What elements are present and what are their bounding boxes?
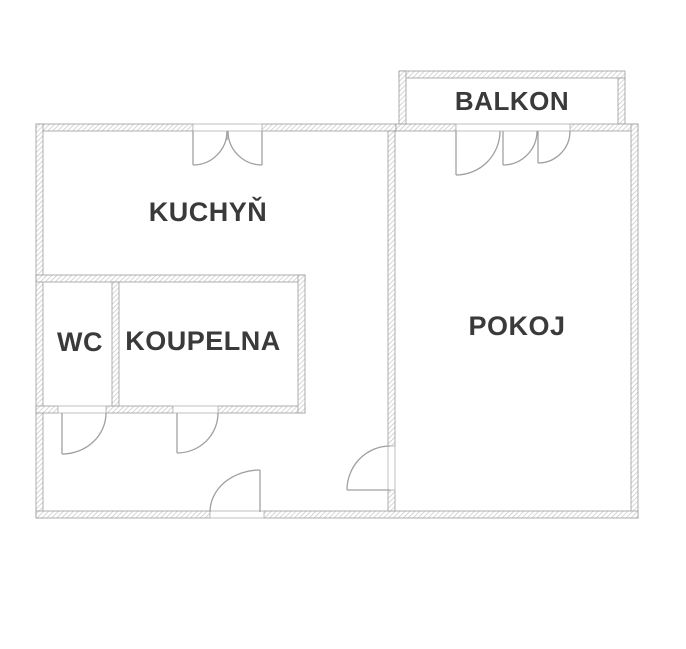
room-label-pokoj: POKOJ <box>468 311 565 341</box>
room-label-kuchyn: KUCHYŇ <box>149 196 268 227</box>
wall-koupelna-right <box>298 275 305 413</box>
opening-pokoj-door <box>388 446 395 490</box>
wall-wcblock-bottom-b <box>106 406 173 413</box>
wall-wc-divider <box>112 282 119 406</box>
room-label-koupelna: KOUPELNA <box>125 326 281 356</box>
opening-kitchen-door <box>193 124 262 131</box>
wall-top-b <box>262 124 396 131</box>
wall-balcony-right <box>618 78 625 124</box>
koupelna-door-arc <box>177 413 218 453</box>
wall-pokoj-left-upper <box>388 131 395 446</box>
floor-plan-drawing: BALKON KUCHYŇ POKOJ WC KOUPELNA <box>0 0 686 649</box>
pokoj-door-arc <box>347 446 390 490</box>
opening-wc-door <box>58 406 106 413</box>
kitchen-door-left-arc <box>193 131 227 165</box>
kitchen-door-right-arc <box>228 131 262 165</box>
opening-entry-door <box>210 511 264 518</box>
wall-right <box>631 124 638 518</box>
wall-left <box>36 124 43 518</box>
opening-koupelna-door <box>173 406 218 413</box>
opening-balcony-door <box>456 124 570 131</box>
balcony-door-arc-1 <box>456 131 500 175</box>
entry-door-arc <box>210 470 260 512</box>
wall-balcony-top <box>399 71 625 78</box>
wc-door-arc <box>62 413 106 454</box>
wall-balcony-left <box>399 71 406 124</box>
room-label-wc: WC <box>57 327 103 357</box>
wall-bottom-a <box>36 511 210 518</box>
wall-bottom-b <box>264 511 638 518</box>
room-label-balkon: BALKON <box>455 86 569 116</box>
wall-wcblock-bottom-c <box>218 406 305 413</box>
wall-top-a <box>36 124 193 131</box>
wall-wcblock-top <box>36 275 305 282</box>
floor-plan-canvas: BALKON KUCHYŇ POKOJ WC KOUPELNA <box>0 0 686 649</box>
wall-pokoj-left-lower <box>388 490 395 511</box>
wall-wcblock-bottom-a <box>36 406 58 413</box>
wall-top-c <box>396 124 456 131</box>
wall-top-d <box>570 124 638 131</box>
walls <box>36 71 638 518</box>
balcony-door-arc-2 <box>503 131 537 165</box>
balcony-door-arc-3 <box>538 131 570 163</box>
